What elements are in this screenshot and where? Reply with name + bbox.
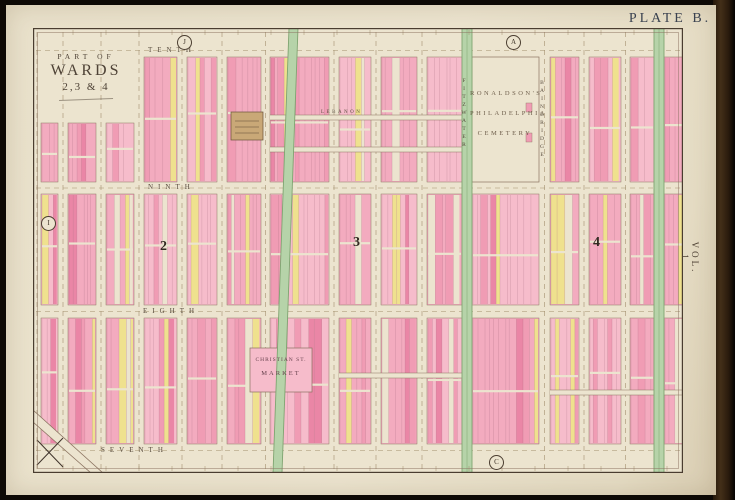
map-plate: PART OF WARDS 2,3 & 4 TENTH NINTH EIGHTH… — [33, 28, 683, 473]
cemetery-label-line3: CEMETERY — [470, 130, 540, 137]
adjacent-plate-ref-left: I — [41, 216, 56, 231]
market-building-label: CHRISTIAN ST. MARKET — [250, 357, 312, 377]
street-label-lebanon: LEBANON — [321, 110, 362, 115]
ward-number-3: 3 — [353, 235, 360, 251]
adjacent-plate-ref-top-right: A — [506, 35, 521, 50]
plate-number-label: PLATE B. — [620, 11, 720, 27]
cemetery-label-line2: PHILADELPHIA — [470, 110, 540, 117]
map-sheet-paper: PLATE B. VOL. 1 PART OF WARDS 2,3 & 4 TE… — [6, 5, 716, 495]
title-part-of: PART OF — [35, 52, 137, 61]
book-binding-edge — [713, 0, 735, 500]
title-ward-numbers: 2,3 & 4 — [35, 81, 137, 93]
market-label-line2: MARKET — [250, 370, 312, 377]
map-title-cartouche: PART OF WARDS 2,3 & 4 — [35, 52, 137, 100]
volume-label: VOL. 1 — [680, 236, 700, 280]
market-label-line1: CHRISTIAN ST. — [250, 357, 312, 363]
adjacent-plate-ref-bottom: C — [489, 455, 504, 470]
street-label-ninth: NINTH — [148, 181, 195, 194]
ward-number-2: 2 — [160, 239, 167, 255]
street-label-seventh: SEVENTH — [101, 444, 168, 457]
atlas-scan-page: { "plate_label": "PLATE B.", "volume_lab… — [0, 0, 735, 500]
cemetery-label: RONALDSON'S PHILADELPHIA CEMETERY — [470, 90, 540, 150]
adjacent-plate-ref-top-left: J — [177, 35, 192, 50]
ward-number-4: 4 — [593, 235, 600, 251]
street-label-eighth: EIGHTH — [143, 305, 199, 318]
street-label-fitzwater: FITZWATER — [461, 78, 467, 150]
cemetery-label-line1: RONALDSON'S — [470, 90, 540, 97]
title-wards: WARDS — [35, 62, 137, 80]
